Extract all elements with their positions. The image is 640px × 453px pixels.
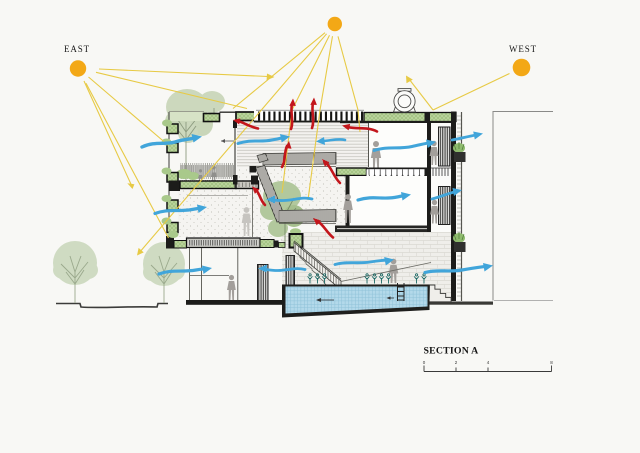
svg-text:WEST: WEST	[509, 44, 537, 54]
svg-text:SECTION A: SECTION A	[424, 346, 479, 357]
svg-text:EAST: EAST	[64, 44, 90, 54]
